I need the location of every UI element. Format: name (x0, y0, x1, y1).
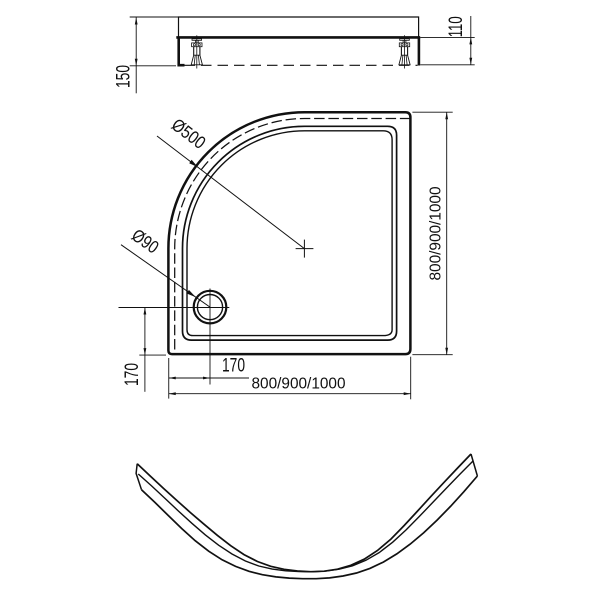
svg-text:800/900/1000: 800/900/1000 (428, 186, 445, 280)
svg-text:Ø500: Ø500 (168, 115, 210, 153)
svg-text:800/900/1000: 800/900/1000 (252, 376, 346, 393)
svg-text:Ø90: Ø90 (128, 225, 162, 257)
svg-text:170: 170 (122, 363, 143, 386)
svg-text:150: 150 (114, 65, 135, 88)
svg-text:110: 110 (446, 16, 467, 37)
svg-text:170: 170 (222, 355, 245, 376)
